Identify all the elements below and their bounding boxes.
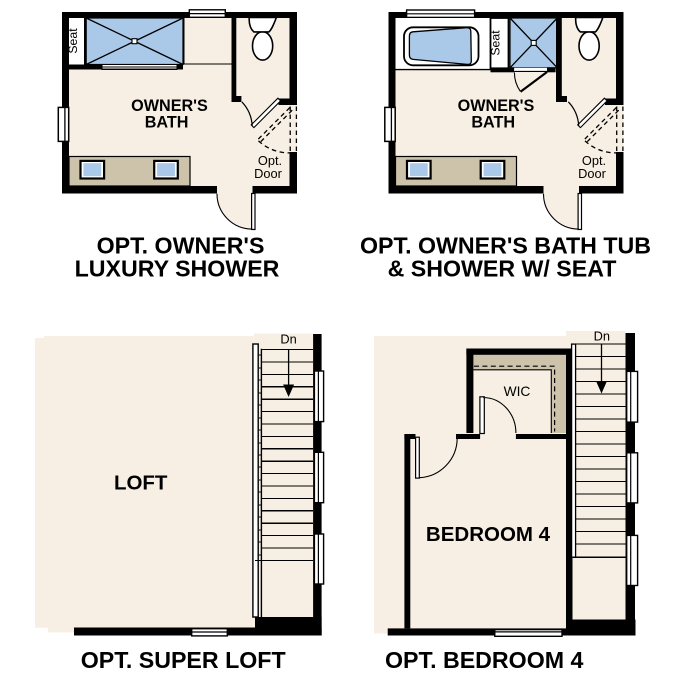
svg-text:Seat: Seat	[66, 28, 80, 54]
svg-text:Door: Door	[578, 166, 606, 181]
svg-text:BATH: BATH	[471, 114, 515, 132]
svg-text:LOFT: LOFT	[114, 471, 168, 494]
svg-text:Door: Door	[254, 166, 282, 181]
svg-text:OPT. SUPER LOFT: OPT. SUPER LOFT	[81, 647, 286, 673]
svg-text:Dn: Dn	[594, 329, 610, 344]
svg-text:WIC: WIC	[504, 384, 531, 399]
svg-text:Dn: Dn	[280, 332, 296, 347]
svg-text:Seat: Seat	[489, 30, 503, 56]
svg-text:OWNER'S: OWNER'S	[458, 97, 535, 115]
svg-text:BEDROOM 4: BEDROOM 4	[426, 523, 551, 546]
svg-text:OWNER'S: OWNER'S	[131, 97, 208, 115]
svg-text:& SHOWER W/ SEAT: & SHOWER W/ SEAT	[388, 255, 617, 281]
svg-text:LUXURY SHOWER: LUXURY SHOWER	[75, 255, 280, 281]
svg-text:OPT. BEDROOM 4: OPT. BEDROOM 4	[385, 647, 584, 673]
svg-text:BATH: BATH	[145, 114, 189, 132]
